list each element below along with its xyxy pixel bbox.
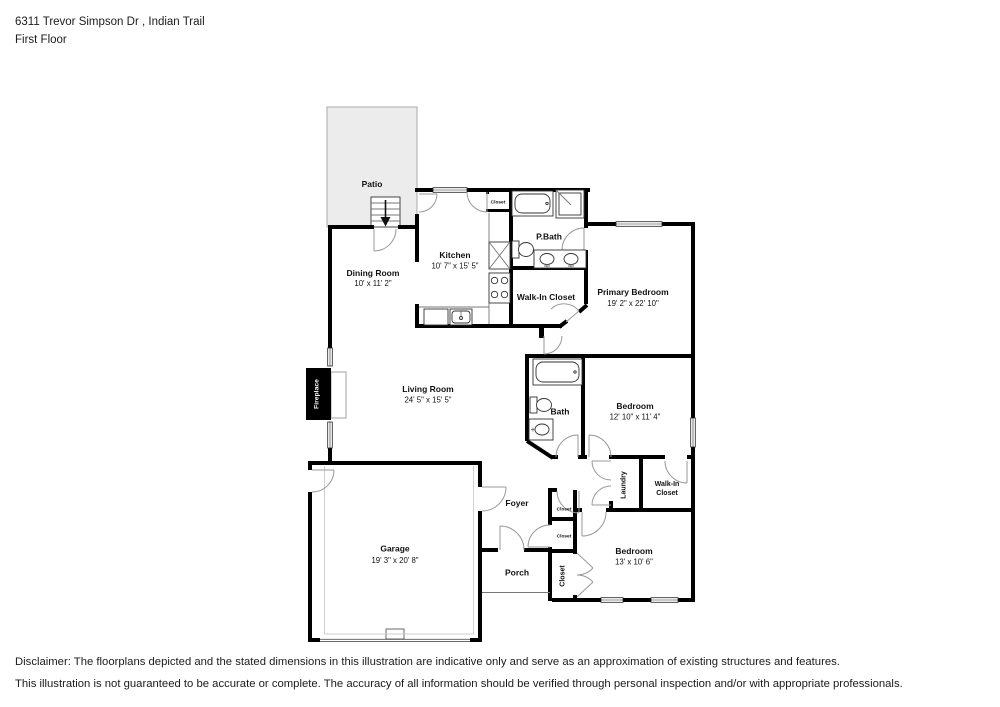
disclaimer: Disclaimer: The floorplans depicted and … xyxy=(15,651,903,695)
window xyxy=(328,422,333,448)
label-bedroom3: Bedroom xyxy=(615,546,653,556)
window xyxy=(328,348,333,366)
bath-tub xyxy=(533,359,582,385)
label-bath: Bath xyxy=(551,407,570,417)
door-walkin2 xyxy=(665,461,687,483)
door-kitchen-closet xyxy=(467,192,487,212)
pbath-tub xyxy=(512,191,553,216)
label-kitchen: Kitchen xyxy=(439,250,470,260)
label-walkin2-line2: Closet xyxy=(656,490,678,497)
kitchen-sink xyxy=(450,309,472,325)
door-bedroom2 xyxy=(589,435,611,457)
disclaimer-line1: Disclaimer: The floorplans depicted and … xyxy=(15,651,903,673)
dims-kitchen: 10' 7" x 15' 5" xyxy=(431,262,478,271)
floorplan-page: 6311 Trevor Simpson Dr , Indian Trail Fi… xyxy=(0,0,1000,707)
bath-toilet xyxy=(530,397,552,413)
dims-bedroom3: 13' x 10' 6" xyxy=(615,558,653,567)
kitchen-dishwasher xyxy=(424,309,448,325)
door-bedroom3 xyxy=(582,512,606,536)
door-garage-foyer xyxy=(482,487,506,511)
pbath-toilet xyxy=(512,241,534,258)
door-closet3-double xyxy=(577,553,593,597)
door-laundry-bifold xyxy=(592,461,611,505)
door-patio-kitchen xyxy=(419,194,437,212)
label-patio: Patio xyxy=(362,179,383,189)
bath-sink xyxy=(529,419,553,440)
label-foyer: Foyer xyxy=(505,498,529,508)
door-closet2 xyxy=(528,525,550,547)
floorplan-drawing: Patio Dining Room 10' x 11' 2" Kitchen 1… xyxy=(0,0,1000,707)
label-porch: Porch xyxy=(505,568,529,578)
dims-primary-bedroom: 19' 2" x 22' 10" xyxy=(607,299,659,308)
pbath-shower xyxy=(556,190,584,218)
label-kitchen-closet: Closet xyxy=(491,200,506,206)
fireplace-hearth xyxy=(331,372,346,418)
label-living: Living Room xyxy=(402,384,454,394)
window xyxy=(616,222,662,227)
door-walkin-primary xyxy=(551,304,579,322)
window xyxy=(651,598,678,603)
label-garage: Garage xyxy=(380,544,410,554)
label-walkin2-line1: Walk-In xyxy=(655,481,680,488)
dims-dining: 10' x 11' 2" xyxy=(354,279,391,288)
door-patio-dining xyxy=(374,229,396,251)
door-primary-hall xyxy=(544,336,562,354)
label-closet2: Closet xyxy=(557,534,572,540)
stairs xyxy=(371,197,400,227)
label-primary-bedroom: Primary Bedroom xyxy=(597,287,669,297)
window xyxy=(601,598,623,603)
label-dining: Dining Room xyxy=(347,268,400,278)
label-closet3: Closet xyxy=(560,565,567,587)
label-walkin-primary: Walk-In Closet xyxy=(517,292,575,302)
kitchen-fridge xyxy=(489,242,510,269)
label-pbath: P.Bath xyxy=(536,232,562,242)
pbath-vanity xyxy=(534,250,586,268)
door-bath xyxy=(556,435,578,457)
kitchen-stove xyxy=(489,273,510,303)
door-front-entry xyxy=(500,526,524,550)
room-labels: Patio Dining Room 10' x 11' 2" Kitchen 1… xyxy=(314,179,680,587)
label-laundry: Laundry xyxy=(621,471,628,499)
label-closet1: Closet xyxy=(557,507,572,513)
patio-area xyxy=(327,107,417,227)
window xyxy=(691,418,696,447)
window xyxy=(433,188,467,193)
dims-living: 24' 5" x 15' 5" xyxy=(404,396,451,405)
garage-door xyxy=(320,466,474,642)
label-fireplace: Fireplace xyxy=(314,379,321,409)
door-pbath-primary xyxy=(562,228,584,250)
label-bedroom2: Bedroom xyxy=(616,401,654,411)
disclaimer-line2: This illustration is not guaranteed to b… xyxy=(15,673,903,695)
door-garage-side xyxy=(312,470,334,492)
dims-garage: 19' 3" x 20' 8" xyxy=(371,556,418,565)
dims-bedroom2: 12' 10" x 11' 4" xyxy=(610,413,661,422)
